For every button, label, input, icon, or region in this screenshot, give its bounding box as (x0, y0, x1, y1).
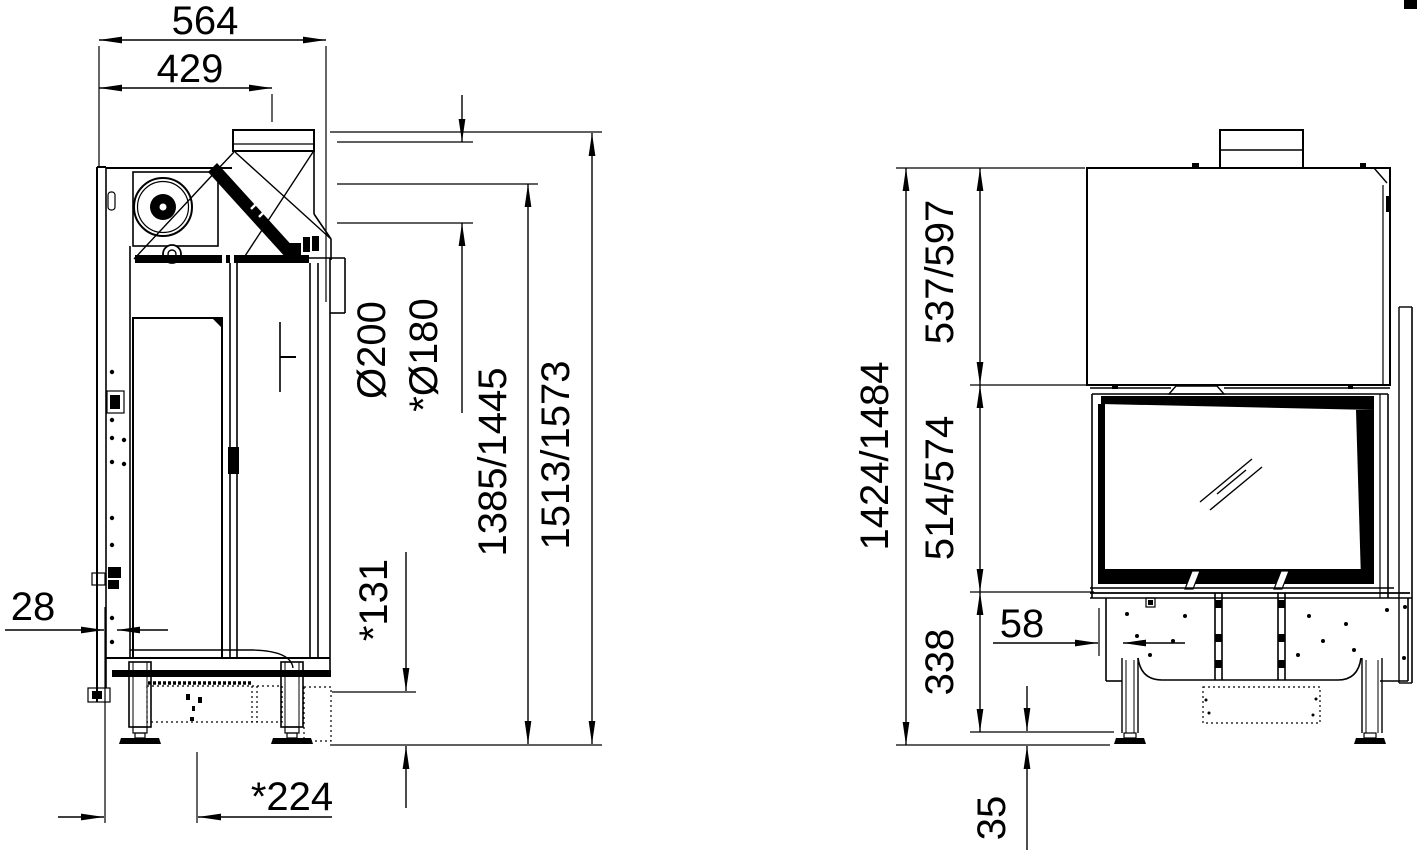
dim-front-total-height: 1424/1484 (853, 361, 897, 550)
side-view: 564 429 Ø200 *Ø180 1385/1445 1513/1573 *… (5, 0, 602, 823)
dim-rear-offset: 28 (11, 585, 56, 629)
dim-foot-height: 35 (970, 796, 1014, 841)
drawing-canvas: 564 429 Ø200 *Ø180 1385/1445 1513/1573 *… (0, 0, 1419, 856)
front-view: 1424/1484 537/597 514/574 338 35 58 (853, 130, 1412, 850)
flue-stub (1220, 130, 1303, 168)
dim-total-height: 1513/1573 (534, 360, 578, 549)
base-rail (112, 670, 331, 677)
side-return-panel (1399, 307, 1412, 683)
side-view-extension-lines (99, 46, 602, 823)
dim-flue-axis-height: 1385/1445 (471, 367, 515, 556)
legs-front (1114, 658, 1386, 744)
side-view-body (88, 130, 345, 744)
door-glass (1090, 394, 1410, 598)
logo-fragment (1404, 0, 1417, 9)
glass-reflection (1200, 459, 1262, 510)
hood-panel (1087, 168, 1390, 385)
front-view-body (1087, 130, 1412, 744)
dim-flue-diameter-alt: *Ø180 (402, 298, 446, 411)
dim-total-width: 564 (172, 0, 239, 43)
dim-top-width: 429 (157, 47, 224, 91)
dim-door-height: 514/574 (918, 416, 962, 561)
convection-jacket-panel (133, 318, 222, 658)
technical-drawing-page: 564 429 Ø200 *Ø180 1385/1445 1513/1573 *… (0, 0, 1419, 856)
base-screw-holes (1125, 608, 1389, 657)
dim-flue-diameter: Ø200 (350, 301, 394, 399)
dim-bottom-clearance: *131 (352, 559, 396, 641)
dim-leg-center-depth: *224 (251, 775, 333, 819)
hidden-ashbox-dotted (1203, 687, 1320, 723)
dim-base-height: 338 (918, 629, 962, 696)
dim-front-offset: 58 (1000, 602, 1045, 646)
dim-hood-height: 537/597 (918, 200, 962, 345)
